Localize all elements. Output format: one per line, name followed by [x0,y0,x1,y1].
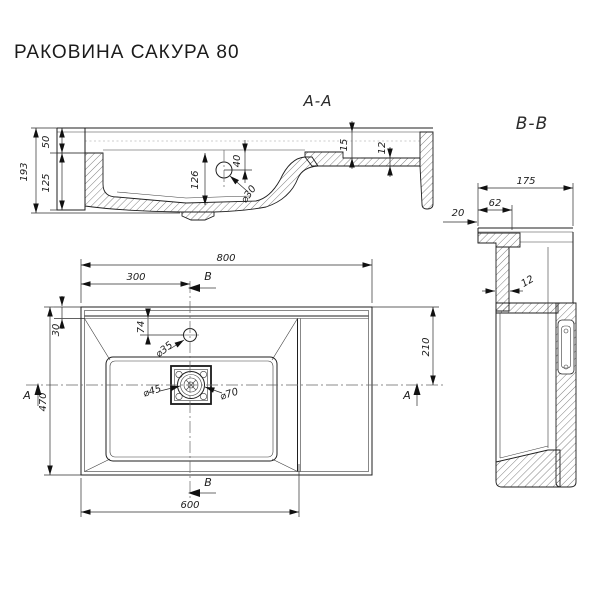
bb-step [496,303,558,313]
svg-text:20: 20 [452,208,465,219]
section-bb-view: В-В [443,114,576,487]
aa-bowl-section [85,153,318,212]
svg-text:12: 12 [377,142,388,155]
plan-bowl-rim [106,357,277,461]
bb-mounting-slot [558,320,574,374]
section-marker-a-right: А [402,383,420,406]
section-marker-b-top: В [188,270,216,292]
svg-text:15: 15 [339,139,350,152]
drawing-canvas: А-А 1 [0,0,600,600]
svg-text:50: 50 [41,136,52,149]
aa-left-block [57,128,85,210]
svg-text:210: 210 [421,337,432,356]
svg-text:175: 175 [516,176,535,187]
dim-plan-back-rim: 30 [51,296,85,336]
svg-text:193: 193 [19,162,30,181]
svg-text:30: 30 [51,324,62,337]
svg-text:126: 126 [190,170,201,189]
svg-text:В: В [204,476,212,489]
svg-text:В: В [204,270,212,283]
svg-text:62: 62 [489,198,502,209]
svg-text:125: 125 [41,173,52,192]
drawing-sheet: РАКОВИНА САКУРА 80 А-А [0,0,600,600]
svg-text:⌀70: ⌀70 [219,386,240,402]
svg-text:300: 300 [126,272,145,283]
aa-ledge-section [305,152,420,166]
dim-bb-front-offset: 62 [478,198,512,230]
svg-text:74: 74 [136,321,147,334]
section-aa-view: А-А 1 [19,92,433,220]
bb-top-flange [478,233,520,247]
dim-plan-faucet-from-back: 74 [136,310,184,343]
bb-bottom [496,450,560,487]
svg-text:А: А [22,389,31,402]
section-marker-b-bottom: В [188,476,216,497]
aa-drain-boss [182,212,214,220]
svg-text:12: 12 [519,274,536,290]
dim-plan-right-to-center: 210 [372,307,439,385]
dim-aa-mid-height: 125 [41,153,62,210]
svg-text:470: 470 [38,392,49,411]
svg-text:⌀45: ⌀45 [142,383,163,399]
section-bb-label: В-В [516,114,548,134]
dim-bb-edge-offset: 20 [443,208,477,222]
aa-right-wall [420,132,433,209]
svg-text:А: А [402,389,411,402]
svg-text:40: 40 [232,155,243,168]
dim-plan-overall-width: 800 [81,253,372,303]
dim-plan-faucet-from-left: 300 [81,272,190,284]
bb-front-wall [496,247,509,311]
svg-text:800: 800 [216,253,235,264]
plan-view: 800 300 В В [22,253,443,517]
svg-text:600: 600 [180,500,199,511]
section-aa-label: А-А [303,92,333,110]
